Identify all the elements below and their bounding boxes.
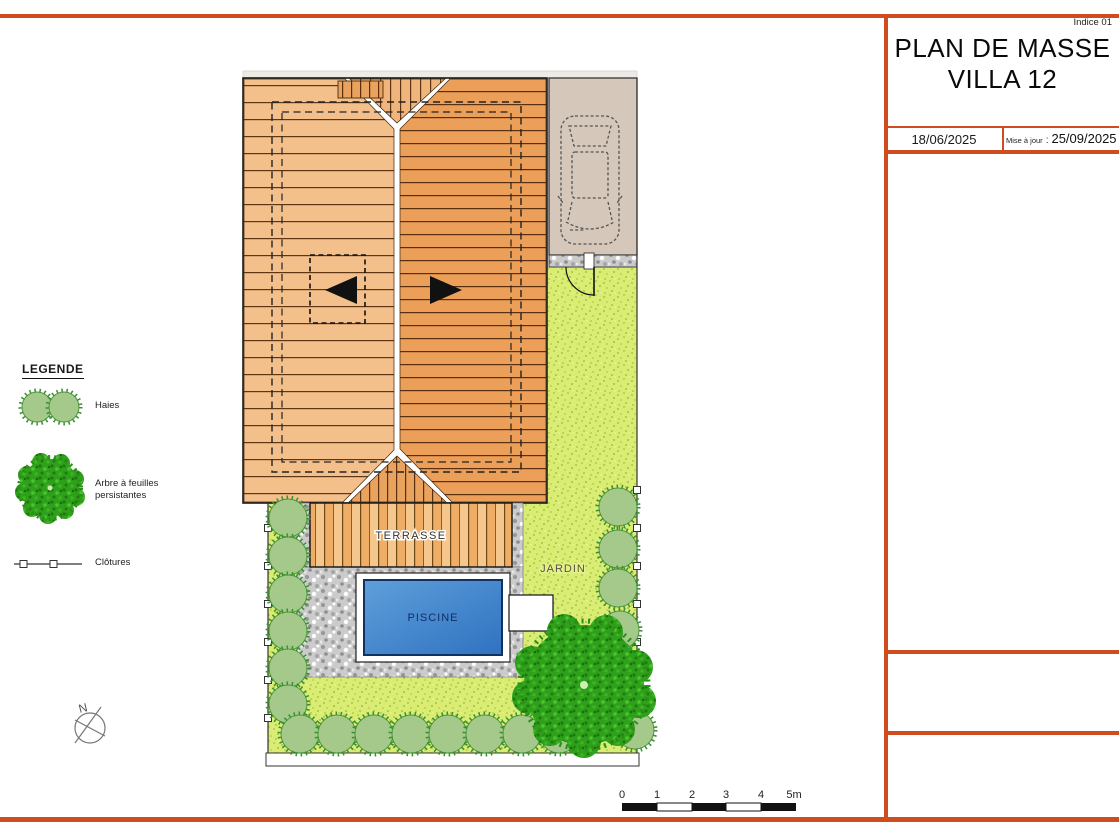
frame-bottom-rule xyxy=(0,817,1119,822)
plot-top-band xyxy=(243,71,637,78)
terrace: TERRASSE xyxy=(310,503,512,567)
pool-label: PISCINE xyxy=(407,612,458,624)
date-updated: 25/09/2025 xyxy=(1051,131,1116,146)
updated-label: Mise à jour xyxy=(1006,136,1043,145)
north-compass-icon: N xyxy=(75,700,105,743)
legend-item-arbre: Arbre à feuilles persistantes xyxy=(95,478,187,502)
legend-item-clotures: Clôtures xyxy=(95,557,130,569)
scale-tick: 2 xyxy=(689,789,695,801)
panel-divider-1 xyxy=(884,650,1119,654)
scale-tick: 3 xyxy=(723,789,729,801)
chimney xyxy=(338,81,383,98)
scale-tick: 0 xyxy=(619,789,625,801)
date-updated-cell: Mise à jour : 25/09/2025 xyxy=(1006,128,1118,153)
north-label: N xyxy=(77,700,89,716)
indice-label: Indice 01 xyxy=(888,17,1112,28)
tree-icon xyxy=(12,450,88,526)
scale-tick: 5m xyxy=(786,789,801,801)
date-created: 18/06/2025 xyxy=(888,128,1000,150)
site-plan-sheet: TERRASSE PISCINE xyxy=(0,0,1119,839)
scale-tick: 1 xyxy=(654,789,660,801)
scale-bar: 0 1 2 3 4 5m xyxy=(619,789,802,811)
updated-colon: : xyxy=(1046,135,1049,146)
terrace-label: TERRASSE xyxy=(375,530,446,542)
panel-divider-2 xyxy=(884,731,1119,735)
fence-icon xyxy=(12,556,84,572)
scale-tick: 4 xyxy=(758,789,764,801)
legend-item-haies: Haies xyxy=(95,400,119,412)
page-title-line1: PLAN DE MASSE xyxy=(888,33,1117,64)
date-cell-divider xyxy=(1002,128,1004,150)
building-roof xyxy=(243,78,547,503)
page-title: PLAN DE MASSE VILLA 12 xyxy=(888,33,1117,95)
pool-equipment-box xyxy=(509,595,553,631)
page-title-line2: VILLA 12 xyxy=(888,64,1117,95)
legend-heading: LEGENDE xyxy=(22,362,84,379)
hedge-icon xyxy=(16,386,88,428)
garden-label: JARDIN xyxy=(540,563,586,575)
